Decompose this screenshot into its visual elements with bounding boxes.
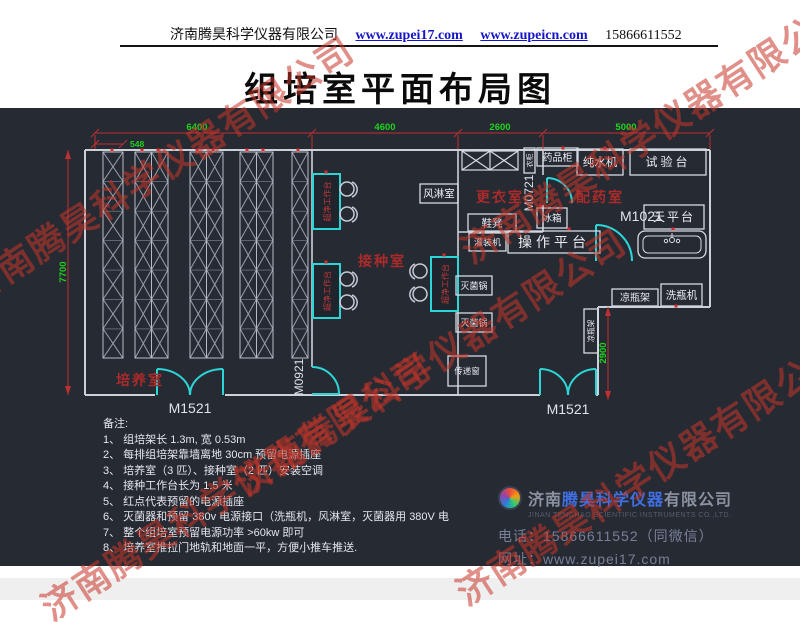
- note-line: 3、 培养室（3 匹）、接种室（2 匹）安装空调: [103, 464, 449, 480]
- note-line: 1、 组培架长 1.3m, 宽 0.53m: [103, 433, 449, 449]
- bottle-washer-box: 洗瓶机: [661, 284, 702, 306]
- shoe-bench-box: 鞋凳: [468, 214, 516, 231]
- header-rule: [120, 45, 718, 47]
- clean-bench-1: 超净工作台: [313, 174, 340, 229]
- dim-6400: 6400: [186, 122, 207, 133]
- wardrobe-box: 衣柜: [524, 148, 535, 173]
- note-line: 7、 整个组培室预留电源功率 >60kw 即可: [103, 526, 449, 542]
- door-label-m1021: M1021: [620, 208, 663, 224]
- phone-label: 电话：: [498, 528, 543, 544]
- page-title: 组培室平面布局图: [0, 62, 800, 111]
- pass-window-box: 传递窗: [448, 356, 486, 386]
- dim-548: 548: [130, 139, 144, 149]
- sterilizer-label: 灭菌锅: [460, 280, 487, 291]
- company-name-en: JINAN TENGHAO SCIENTIFIC INSTRUMENTS CO.…: [528, 512, 732, 519]
- company-name: 济南腾昊科学仪器有限公司: [528, 486, 732, 510]
- company-logo: [498, 486, 522, 510]
- water-purifier-label: 纯水机: [583, 155, 618, 169]
- clean-bench-label: 超净工作台: [322, 182, 332, 222]
- bottle-rack-vertical-box: 凉瓶架: [584, 309, 598, 353]
- sterilizer-label: 灭菌锅: [460, 317, 487, 328]
- bottom-strip: [0, 578, 800, 600]
- header-link-zupeicn[interactable]: www.zupeicn.com: [480, 28, 587, 43]
- clean-bench-2: 超净工作台: [313, 264, 340, 318]
- header-company: 济南腾昊科学仪器有限公司: [170, 28, 338, 43]
- air-shower-label: 风淋室: [423, 187, 455, 200]
- fridge-box: 冰箱: [537, 208, 567, 228]
- faucet-icon: [664, 233, 679, 243]
- wardrobe-label: 衣柜: [525, 154, 534, 168]
- locker-cabinet: [462, 151, 518, 170]
- bottle-rack-box: 凉瓶架: [612, 289, 658, 306]
- test-bench-box: 试验台: [630, 149, 706, 175]
- door-label-m1521-right: M1521: [547, 401, 590, 417]
- footer-web-line: 网址：www.zupei17.com: [498, 548, 732, 571]
- dim-4600: 4600: [374, 122, 395, 133]
- note-line: 8、 培养室推拉门地轨和地面一平，方便小推车推送.: [103, 541, 449, 557]
- filling-machine-box: 灌装机: [469, 233, 506, 251]
- web-value: www.zupei17.com: [543, 551, 671, 567]
- cad-drawing-panel: 超净工作台 超净工作台 超净工作台 风淋室: [0, 108, 800, 566]
- clean-bench-label: 超净工作台: [440, 264, 450, 304]
- room-label-dispensing: 配药室: [576, 189, 624, 205]
- bottle-washer-label: 洗瓶机: [666, 289, 698, 302]
- fridge-label: 冰箱: [542, 213, 561, 225]
- sterilizer-box-1: 灭菌锅: [456, 276, 492, 295]
- room-label-inoculation: 接种室: [358, 253, 406, 269]
- company-name-suffix: 有限公司: [664, 492, 732, 509]
- footer-phone-line: 电话：15866611552（同微信）: [498, 525, 732, 548]
- notes-title: 备注:: [103, 417, 449, 433]
- bottle-rack-label: 凉瓶架: [586, 319, 596, 342]
- pass-window-label: 传递窗: [454, 366, 480, 376]
- dim-5000: 5000: [615, 122, 636, 133]
- dim-7700: 7700: [58, 261, 69, 282]
- filling-machine-label: 灌装机: [474, 237, 501, 248]
- door-m0721: [547, 178, 572, 203]
- double-door-m1521-left: [157, 369, 223, 395]
- dim-2900: 2900: [598, 342, 609, 363]
- note-line: 5、 红点代表预留的电源插座: [103, 495, 449, 511]
- door-dispensing: [596, 225, 632, 261]
- phone-value: 15866611552（同微信）: [543, 528, 714, 544]
- clean-bench-3: 超净工作台: [431, 257, 458, 311]
- header-link-zupei17[interactable]: www.zupei17.com: [356, 28, 463, 43]
- note-line: 4、 接种工作台长为 1.5 米: [103, 479, 449, 495]
- dim-2600: 2600: [489, 122, 510, 133]
- page-header: 济南腾昊科学仪器有限公司 www.zupei17.com www.zupeicn…: [170, 24, 682, 44]
- clean-bench-label: 超净工作台: [322, 271, 332, 311]
- bottle-rack-label: 凉瓶架: [620, 291, 650, 304]
- door-label-m0721: M0721: [522, 174, 536, 211]
- note-line: 2、 每排组培架靠墙离地 30cm 预留电源插座: [103, 448, 449, 464]
- door-m0921: [312, 367, 339, 394]
- door-label-m1521-left: M1521: [169, 400, 212, 416]
- walls: [85, 150, 710, 395]
- doors: [157, 178, 632, 395]
- company-name-prefix: 济南: [528, 492, 562, 509]
- shoe-bench-label: 鞋凳: [482, 217, 503, 230]
- air-shower-box: 风淋室: [420, 184, 458, 203]
- culture-racks: [103, 152, 308, 358]
- operation-platform-box: 操作平台: [508, 231, 600, 253]
- notes-block: 备注: 1、 组培架长 1.3m, 宽 0.53m 2、 每排组培架靠墙离地 3…: [103, 417, 449, 557]
- sink: [638, 231, 706, 258]
- stool-icons: [340, 182, 427, 310]
- operation-platform-label: 操作平台: [518, 234, 590, 250]
- room-label-changing: 更衣室: [476, 189, 524, 205]
- header-phone: 15866611552: [605, 28, 681, 43]
- footer-company-block: 济南腾昊科学仪器有限公司 JINAN TENGHAO SCIENTIFIC IN…: [498, 486, 732, 571]
- water-purifier-box: 纯水机: [577, 149, 623, 175]
- note-line: 6、 灭菌器和预留 380v 电源接口（洗瓶机，风淋室，灭菌器用 380V 电: [103, 510, 449, 526]
- company-name-brand: 腾昊科学仪器: [562, 492, 664, 509]
- medicine-cabinet-label: 药品柜: [543, 151, 573, 164]
- sterilizer-box-2: 灭菌锅: [456, 313, 492, 332]
- web-label: 网址：: [498, 551, 543, 567]
- double-door-m1521-right: [540, 369, 596, 395]
- room-label-culture: 培养室: [116, 372, 164, 388]
- test-bench-label: 试验台: [645, 154, 690, 169]
- door-label-m0921: M0921: [292, 358, 306, 395]
